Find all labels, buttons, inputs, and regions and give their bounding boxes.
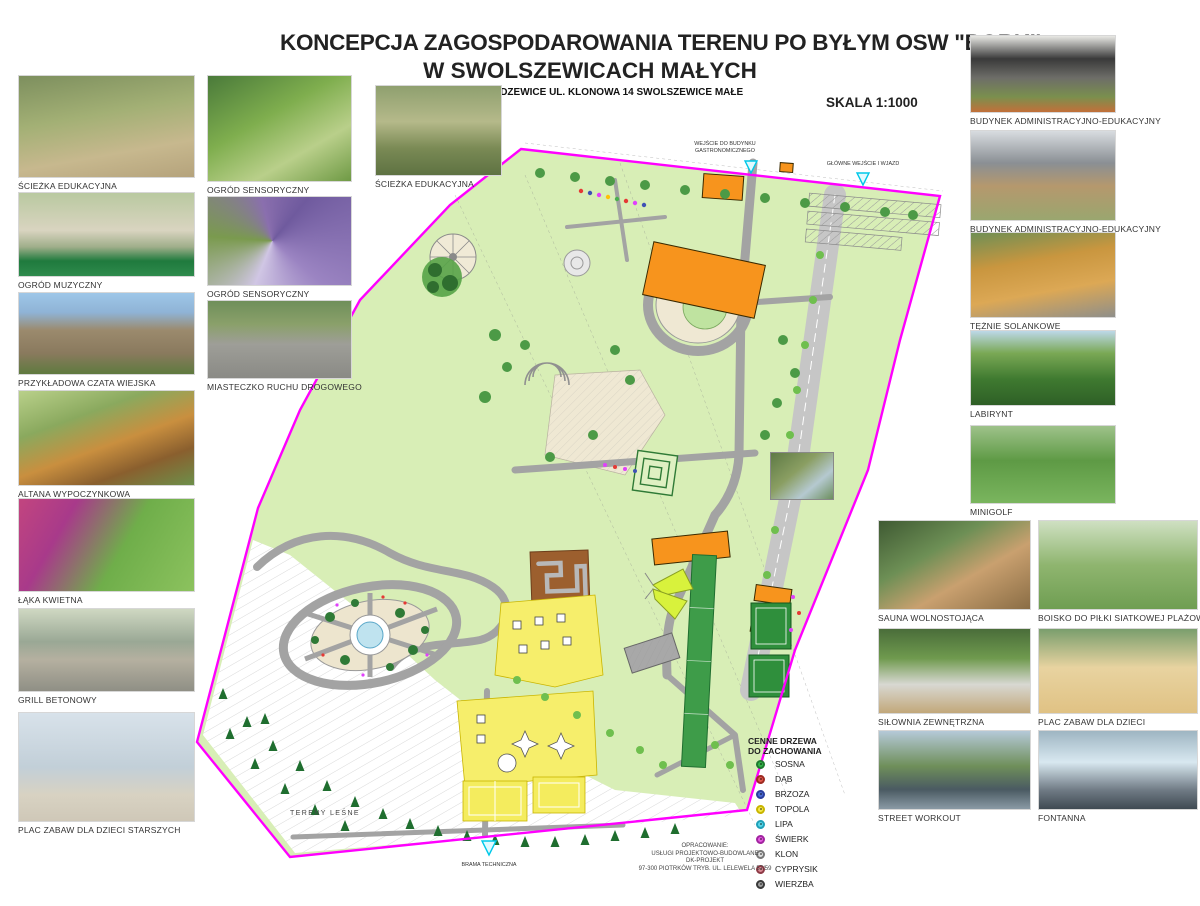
photo-fontanna: FONTANNA — [1038, 730, 1198, 823]
photo-caption: OGRÓD SENSORYCZNY — [207, 185, 352, 195]
site-address: 97-213 SMARDZEWICE UL. KLONOWA 14 SWOLSZ… — [280, 87, 900, 98]
entrance-gastro-marker: WEJŚCIE DO BUDYNKU GASTRONOMICZNEGO — [694, 139, 757, 173]
tree-dot-icon — [756, 820, 765, 829]
photo-labirynt: LABIRYNT — [970, 330, 1116, 419]
tree-dot-icon — [756, 790, 765, 799]
photo-sciezka-edukacyjna: ŚCIEŻKA EDUKACYJNA — [18, 75, 195, 191]
photo-image — [18, 498, 195, 592]
entrance-triangle-icon — [857, 173, 869, 185]
scale-label: SKALA 1:1000 — [826, 95, 918, 110]
page-title-line2: W SWOLSZEWICACH MAŁYCH — [280, 58, 900, 84]
main-entrance-label: GŁÓWNE WEJŚCIE I WJAZD — [827, 159, 900, 167]
photo-caption: BUDYNEK ADMINISTRACYJNO-EDUKACYJNY — [970, 116, 1116, 126]
photo-boisko-siatkowka: BOISKO DO PIŁKI SIATKOWEJ PLAŻOWEJ — [1038, 520, 1198, 623]
photo-image — [18, 75, 195, 178]
gate-triangle-icon — [482, 841, 496, 855]
legend-title-line2: DO ZACHOWANIA — [748, 746, 874, 756]
photo-caption: SAUNA WOLNOSTOJĄCA — [878, 613, 1031, 623]
legend-item-lipa: LIPA — [756, 818, 874, 832]
photo-image — [18, 712, 195, 822]
photo-caption: ŚCIEŻKA EDUKACYJNA — [18, 181, 195, 191]
credits-line: USŁUGI PROJEKTOWO-BUDOWLANE — [600, 851, 810, 859]
tech-gate-label: BRAMA TECHNICZNA — [461, 862, 516, 868]
legend-item-wierzba: WIERZBA — [756, 878, 874, 892]
photo-image — [375, 85, 502, 176]
tech-gate-marker: BRAMA TECHNICZNA — [461, 841, 516, 868]
photo-image — [878, 628, 1031, 714]
photo-image — [970, 425, 1116, 504]
photo-altana: ALTANA WYPOCZYNKOWA — [18, 390, 195, 499]
photo-image — [207, 300, 352, 379]
photo-caption: STREET WORKOUT — [878, 813, 1031, 823]
photo-ogrod-muzyczny: OGRÓD MUZYCZNY — [18, 192, 195, 290]
legend-item-sosna: SOSNA — [756, 758, 874, 772]
photo-image — [970, 130, 1116, 221]
forest-label: TERENY LEŚNE — [290, 808, 360, 817]
photo-sciezka-edukacyjna-tablice: ŚCIEŻKA EDUKACYJNA — [375, 85, 502, 189]
legend-title-line1: CENNE DRZEWA — [748, 736, 874, 746]
photo-caption: MIASTECZKO RUCHU DROGOWEGO — [207, 382, 352, 392]
credits-line: DK-PROJEKT — [600, 858, 810, 866]
photo-caption: PLAC ZABAW DLA DZIECI — [1038, 717, 1198, 727]
photo-sauna: SAUNA WOLNOSTOJĄCA — [878, 520, 1031, 623]
photo-caption: OGRÓD MUZYCZNY — [18, 280, 195, 290]
photo-plac-zabaw-dzieci: PLAC ZABAW DLA DZIECI — [1038, 628, 1198, 727]
tree-dot-icon — [756, 775, 765, 784]
photo-caption: SIŁOWNIA ZEWNĘTRZNA — [878, 717, 1031, 727]
tree-dot-icon — [756, 880, 765, 889]
photo-image — [18, 292, 195, 375]
photo-laka-kwietna: ŁĄKA KWIETNA — [18, 498, 195, 605]
photo-caption: LABIRYNT — [970, 409, 1116, 419]
photo-miasteczko-ruchu: MIASTECZKO RUCHU DROGOWEGO — [207, 300, 352, 392]
photo-image — [1038, 730, 1198, 810]
photo-plac-zabaw-starszych: PLAC ZABAW DLA DZIECI STARSZYCH — [18, 712, 195, 835]
photo-caption: MINIGOLF — [970, 507, 1116, 517]
photo-caption: ŁĄKA KWIETNA — [18, 595, 195, 605]
photo-grill-betonowy: GRILL BETONOWY — [18, 608, 195, 705]
credits-line: OPRACOWANIE: — [600, 843, 810, 851]
photo-image — [970, 232, 1116, 318]
legend-item-topola: TOPOLA — [756, 803, 874, 817]
photo-image — [970, 35, 1116, 113]
photo-czata-wiejska: PRZYKŁADOWA CZATA WIEJSKA — [18, 292, 195, 388]
photo-image — [207, 196, 352, 286]
photo-silownia: SIŁOWNIA ZEWNĘTRZNA — [878, 628, 1031, 727]
tree-dot-icon — [756, 805, 765, 814]
main-entrance-marker: GŁÓWNE WEJŚCIE I WJAZD — [827, 159, 900, 185]
photo-minigolf: MINIGOLF — [970, 425, 1116, 517]
photo-street-workout: STREET WORKOUT — [878, 730, 1031, 823]
photo-image — [207, 75, 352, 182]
credits-line: 97-300 PIOTRKÓW TRYB. UL. LELEWELA 57/59 — [600, 866, 810, 874]
photo-caption: PRZYKŁADOWA CZATA WIEJSKA — [18, 378, 195, 388]
entrance-gastro-label-1: WEJŚCIE DO BUDYNKU — [694, 139, 756, 147]
paintball-inset-photo — [770, 452, 834, 500]
credits-block: OPRACOWANIE: USŁUGI PROJEKTOWO-BUDOWLANE… — [600, 843, 810, 873]
photo-image — [1038, 628, 1198, 714]
legend-item-dab: DĄB — [756, 773, 874, 787]
photo-caption: BOISKO DO PIŁKI SIATKOWEJ PLAŻOWEJ — [1038, 613, 1198, 623]
photo-ogrod-sensoryczny-1: OGRÓD SENSORYCZNY — [207, 75, 352, 195]
page-title: KONCEPCJA ZAGOSPODAROWANIA TERENU PO BYŁ… — [280, 30, 900, 56]
legend-item-brzoza: BRZOZA — [756, 788, 874, 802]
photo-image — [18, 390, 195, 486]
photo-caption: FONTANNA — [1038, 813, 1198, 823]
photo-budynek-adm-2: BUDYNEK ADMINISTRACYJNO-EDUKACYJNY — [970, 130, 1116, 234]
entrance-gastro-label-2: GASTRONOMICZNEGO — [695, 148, 755, 154]
photo-image — [1038, 520, 1198, 610]
photo-budynek-adm-1: BUDYNEK ADMINISTRACYJNO-EDUKACYJNY — [970, 35, 1116, 126]
photo-image — [878, 520, 1031, 610]
poster-header: KONCEPCJA ZAGOSPODAROWANIA TERENU PO BYŁ… — [280, 30, 900, 98]
photo-image — [18, 608, 195, 692]
photo-image — [878, 730, 1031, 810]
photo-caption: GRILL BETONOWY — [18, 695, 195, 705]
photo-caption: ŚCIEŻKA EDUKACYJNA — [375, 179, 502, 189]
photo-teznie-solankowe: TĘŻNIE SOLANKOWE — [970, 232, 1116, 331]
tree-dot-icon — [756, 760, 765, 769]
photo-image — [970, 330, 1116, 406]
photo-caption: PLAC ZABAW DLA DZIECI STARSZYCH — [18, 825, 195, 835]
photo-caption: OGRÓD SENSORYCZNY — [207, 289, 352, 299]
photo-ogrod-sensoryczny-2: OGRÓD SENSORYCZNY — [207, 196, 352, 299]
photo-image — [18, 192, 195, 277]
labyrinth — [632, 450, 677, 495]
